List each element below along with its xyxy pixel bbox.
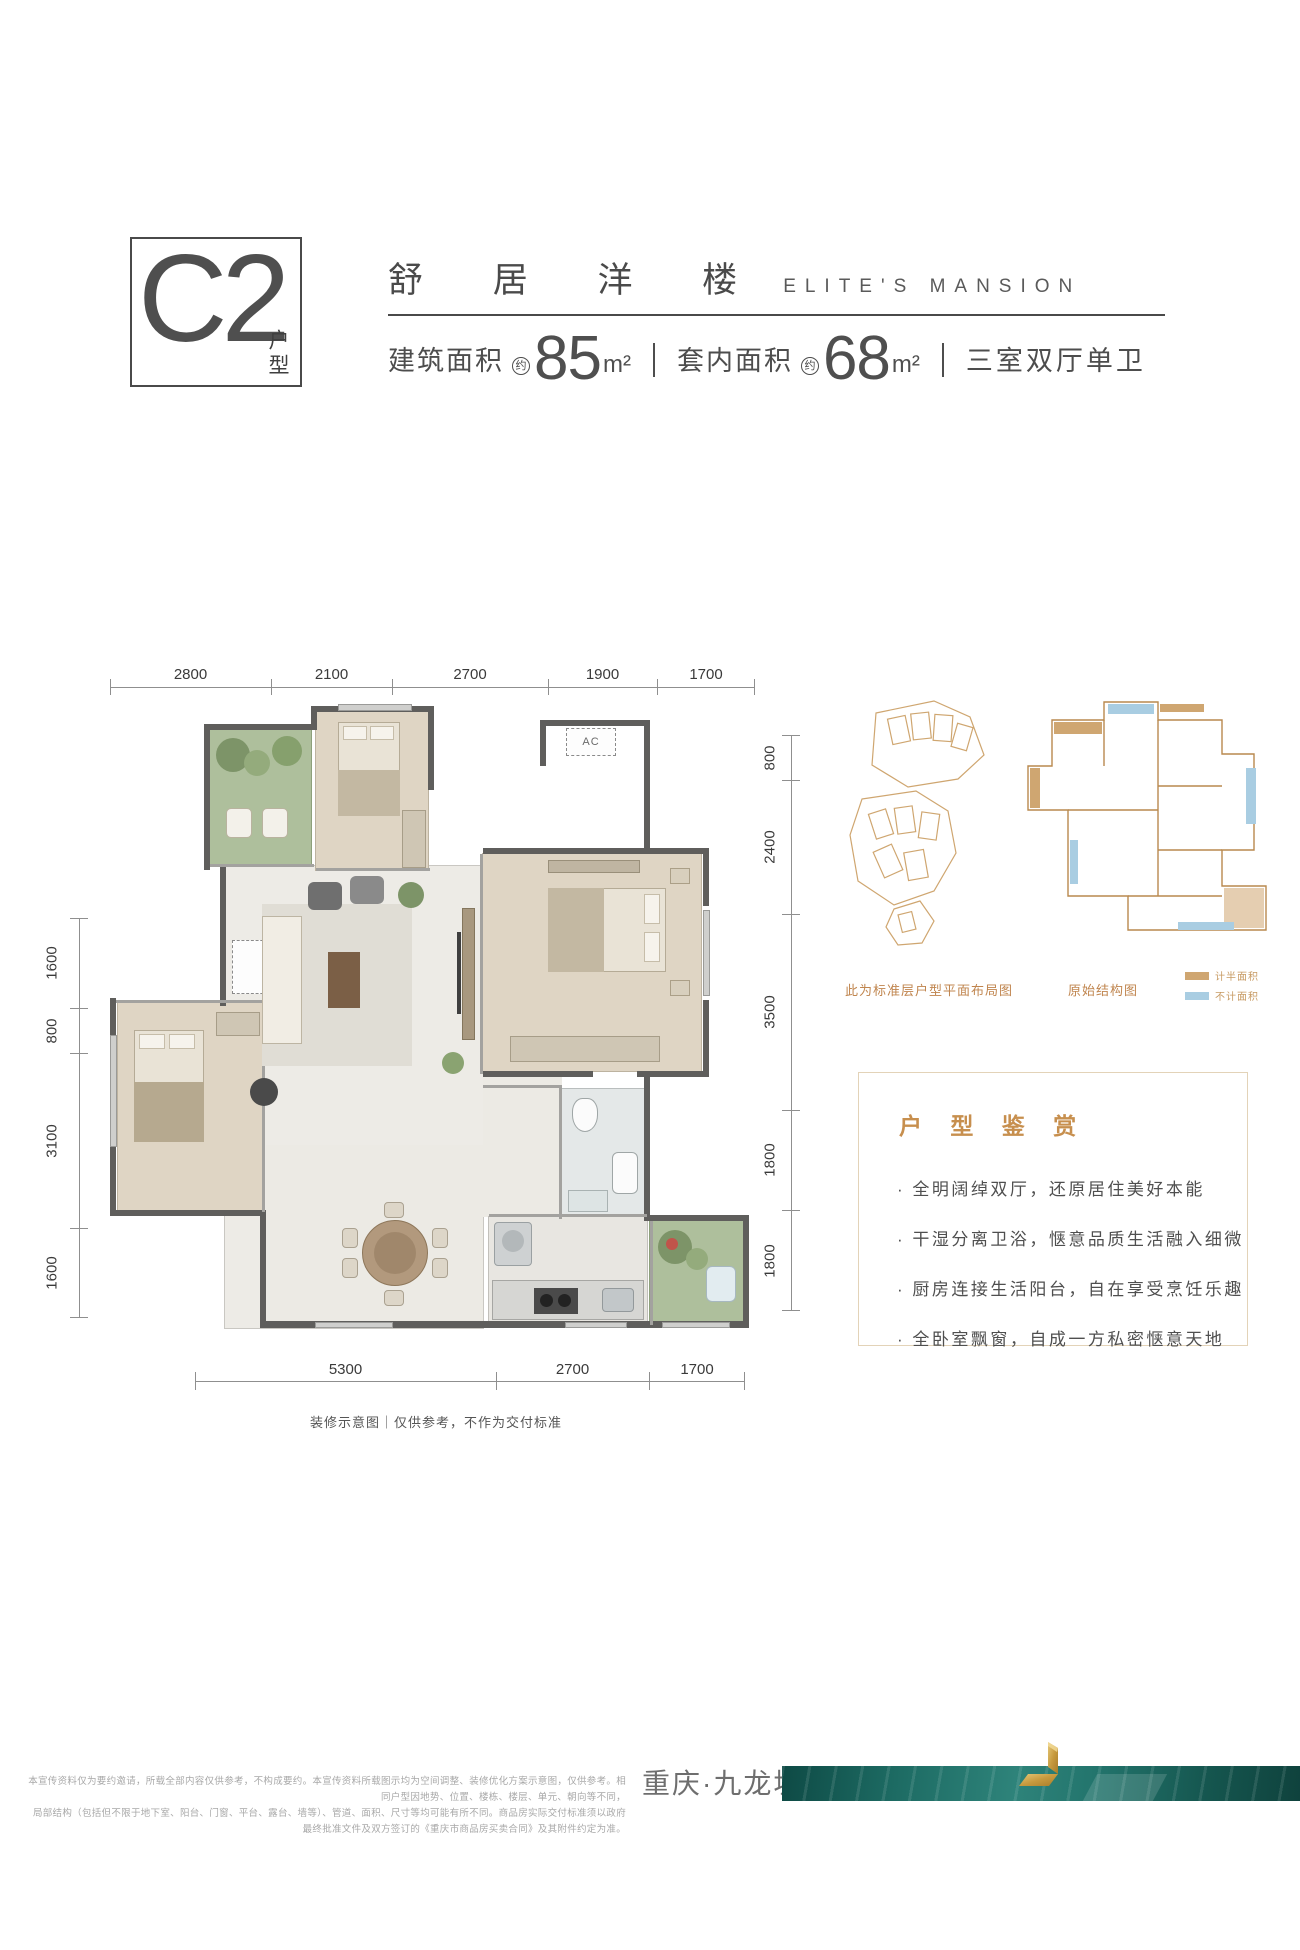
wardrobe (216, 1012, 260, 1036)
area-divider (942, 343, 944, 377)
wall (483, 848, 709, 854)
chair (384, 1290, 404, 1306)
corridor-floor (483, 1071, 562, 1217)
legal-disclaimer: 本宣传资料仅为要约邀请，所载全部内容仅供参考，不构成要约。本宣传资料所载图示均为… (28, 1774, 626, 1838)
appreciation-list: · 全明阔绰双厅，还原居住美好本能 · 干湿分离卫浴，惬意品质生活融入细微 · … (897, 1165, 1227, 1365)
standard-floor-layout-sketch (838, 695, 1003, 965)
dim-segment: 2800 (110, 652, 271, 688)
dresser (548, 860, 640, 873)
dimension-top: 2800 2100 2700 1900 1700 (110, 652, 755, 688)
flowers (666, 1238, 678, 1250)
dim-value: 1900 (548, 666, 657, 683)
dim-segment: 2700 (392, 652, 548, 688)
appreciation-title: 户 型 鉴 赏 (899, 1107, 1087, 1141)
chair (432, 1228, 448, 1248)
wall (204, 724, 210, 870)
plant (398, 882, 424, 908)
appreciation-bullet: · 全明阔绰双厅，还原居住美好本能 (897, 1165, 1227, 1215)
chair (342, 1228, 358, 1248)
wall (112, 1210, 266, 1216)
window (565, 1322, 627, 1328)
lounge-chair (226, 808, 252, 838)
side-table (250, 1078, 278, 1106)
wall (644, 720, 650, 854)
partition (116, 1000, 262, 1003)
unit-appreciation-box: 户 型 鉴 赏 · 全明阔绰双厅，还原居住美好本能 · 干湿分离卫浴，惬意品质生… (858, 1072, 1248, 1346)
room-layout-description: 三室双厅单卫 (966, 339, 1146, 385)
lounge-chair (262, 808, 288, 838)
wall (540, 720, 650, 726)
pillow (169, 1034, 195, 1049)
appreciation-bullet: · 厨房连接生活阳台，自在享受烹饪乐趣 (897, 1265, 1227, 1315)
disclaimer-line: 局部结构（包括但不限于地下室、阳台、门窗、平台、露台、墙等）、管道、面积、尺寸等… (28, 1806, 626, 1838)
blanket (338, 770, 400, 816)
build-area-unit: m² (603, 351, 631, 385)
chair (342, 1258, 358, 1278)
dim-value: 5300 (195, 1361, 496, 1378)
dim-value: 1600 (44, 1256, 61, 1289)
wall (260, 1215, 266, 1327)
window (338, 704, 412, 711)
wall (644, 1215, 749, 1221)
tv (457, 932, 461, 1014)
legend-swatch-not-counted (1185, 992, 1209, 1000)
build-area-label: 建筑面积 (388, 339, 504, 385)
inner-area-unit: m² (892, 351, 920, 385)
dim-segment: 800 (36, 1008, 80, 1053)
area-info-row: 建筑面积 约 85 m² 套内面积 约 68 m² 三室双厅单卫 (388, 334, 1146, 385)
window (110, 1035, 117, 1147)
plan-disclaimer-caption: 装修示意图｜仅供参考，不作为交付标准 (310, 1412, 562, 1431)
wall (220, 866, 226, 1006)
wall (703, 848, 709, 906)
dimension-left: 1600 800 3100 1600 (36, 918, 80, 1318)
approx-circle-icon: 约 (512, 357, 530, 375)
area-divider (653, 343, 655, 377)
disclaimer-line: 本宣传资料仅为要约邀请，所载全部内容仅供参考，不构成要约。本宣传资料所载图示均为… (28, 1774, 626, 1806)
dim-value: 2400 (761, 830, 778, 863)
nightstand (670, 868, 690, 884)
title-chinese: 舒 居 洋 楼 (388, 252, 767, 303)
nightstand (670, 980, 690, 996)
dim-value: 1600 (44, 946, 61, 979)
dim-value: 1700 (657, 666, 755, 683)
window (662, 1322, 730, 1328)
partition (489, 1214, 647, 1217)
pillow (644, 932, 660, 962)
partition (480, 854, 483, 1074)
plant (686, 1248, 708, 1270)
dim-value: 2100 (271, 666, 392, 683)
header-divider-line (388, 314, 1165, 316)
wall (540, 720, 546, 766)
coffee-table (328, 952, 360, 1008)
toilet (572, 1098, 598, 1132)
dim-segment: 1600 (36, 1228, 80, 1318)
legend-label: 不计面积 (1215, 988, 1259, 1003)
dim-segment: 1900 (548, 652, 657, 688)
dim-value: 3100 (44, 1124, 61, 1157)
dim-value: 2700 (392, 666, 548, 683)
ac-label: AC (582, 736, 599, 748)
burner (540, 1294, 553, 1307)
dining-table-center (374, 1232, 416, 1274)
chair (384, 1202, 404, 1218)
dim-segment: 2100 (271, 652, 392, 688)
original-structure-diagram (1008, 690, 1283, 958)
wall (743, 1215, 749, 1327)
structure-diagram-caption: 原始结构图 (1068, 980, 1138, 999)
dim-segment: 3100 (36, 1053, 80, 1228)
brochure-page: C2 户型 舒 居 洋 楼 ELITE'S MANSION 建筑面积 约 85 … (0, 0, 1300, 1950)
partition (483, 1085, 562, 1088)
shower-tray (568, 1190, 608, 1212)
dim-value: 800 (761, 745, 778, 770)
blanket (134, 1082, 204, 1142)
layout-sketch-caption: 此为标准层户型平面布局图 (845, 980, 1013, 999)
wardrobe (510, 1036, 660, 1062)
dim-segment: 5300 (195, 1348, 496, 1382)
partition (316, 868, 430, 871)
wall (204, 724, 316, 730)
floor-plan: AC AC (110, 700, 755, 1340)
legend-row: 不计面积 (1185, 988, 1259, 1003)
dim-value: 2700 (496, 1361, 649, 1378)
chair (432, 1258, 448, 1278)
sofa (262, 916, 302, 1044)
dim-value: 1700 (649, 1361, 745, 1378)
teal-bar-ghost-mark (1083, 1774, 1167, 1801)
wall (703, 1000, 709, 1075)
header-title-row: 舒 居 洋 楼 ELITE'S MANSION (388, 252, 1081, 303)
partition (210, 864, 314, 867)
dim-value: 800 (44, 1018, 61, 1043)
dim-value: 3500 (761, 995, 778, 1028)
unit-code-box: C2 户型 (130, 237, 302, 387)
tv-console (462, 908, 475, 1040)
dim-value: 1800 (761, 1244, 778, 1277)
dim-value: 2800 (110, 666, 271, 683)
legend-row: 计半面积 (1185, 968, 1259, 983)
dim-segment: 1600 (36, 918, 80, 1008)
inner-area-label: 套内面积 (677, 339, 793, 385)
plant (272, 736, 302, 766)
pillow (370, 726, 394, 740)
dim-segment: 2700 (496, 1348, 649, 1382)
dim-segment: 1700 (649, 1348, 745, 1382)
window (703, 910, 710, 996)
armchair (308, 882, 342, 910)
appreciation-bullet: · 全卧室飘窗，自成一方私密惬意天地 (897, 1315, 1227, 1365)
legend-swatch-counted-half (1185, 972, 1209, 980)
mop-basin (706, 1266, 736, 1302)
appreciation-bullet: · 干湿分离卫浴，惬意品质生活融入细微 (897, 1215, 1227, 1265)
partition (650, 1221, 653, 1325)
sink (602, 1288, 634, 1312)
pillow (343, 726, 367, 740)
gold-ribbon-logo-icon (1018, 1740, 1070, 1800)
wall (428, 706, 434, 790)
dim-segment: 1700 (657, 652, 755, 688)
washbasin (612, 1152, 638, 1194)
title-english: ELITE'S MANSION (783, 276, 1081, 298)
window (315, 1322, 393, 1328)
armchair (350, 876, 384, 904)
plant (442, 1052, 464, 1074)
wall (483, 1071, 593, 1077)
build-area-value: 85 (534, 334, 601, 385)
unit-type-label: 户型 (262, 329, 292, 379)
wardrobe (402, 810, 426, 868)
partition (559, 1085, 562, 1219)
blanket (548, 888, 604, 972)
wall (644, 1077, 650, 1221)
pillow (139, 1034, 165, 1049)
structure-legend: 计半面积 不计面积 (1185, 968, 1259, 1008)
dimension-bottom: 5300 2700 1700 (195, 1348, 745, 1382)
legend-label: 计半面积 (1215, 968, 1259, 983)
ac-unit-box: AC (566, 728, 616, 756)
plant (244, 750, 270, 776)
approx-circle-icon: 约 (801, 357, 819, 375)
washer-door (502, 1230, 524, 1252)
burner (558, 1294, 571, 1307)
dim-value: 1800 (761, 1143, 778, 1176)
inner-area-value: 68 (823, 334, 890, 385)
pillow (644, 894, 660, 924)
